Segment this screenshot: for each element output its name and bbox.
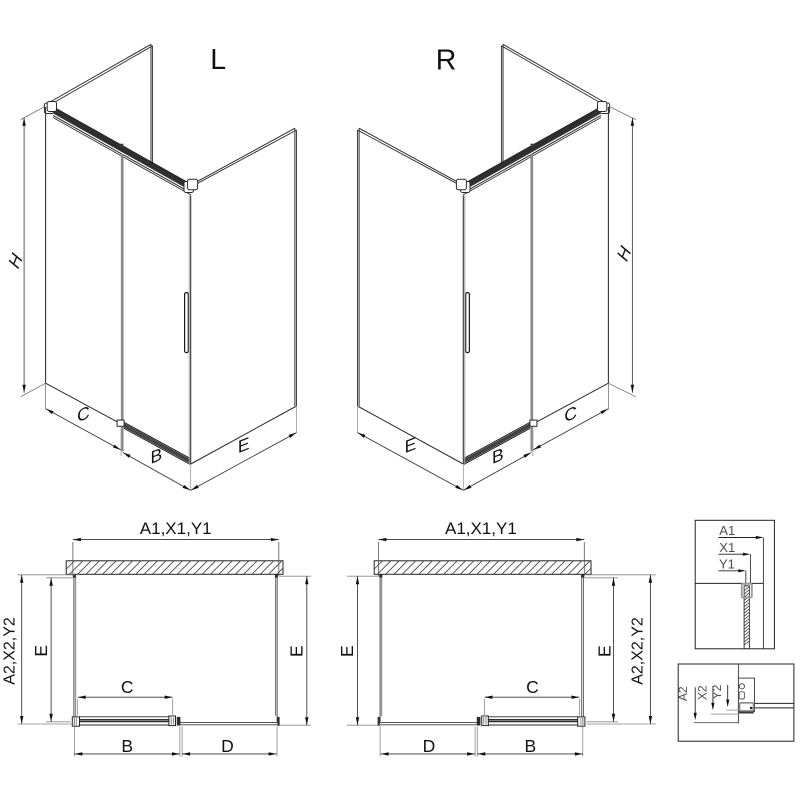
svg-text:A1,X1,Y1: A1,X1,Y1	[140, 519, 212, 538]
svg-text:A1: A1	[719, 523, 735, 538]
svg-text:D: D	[221, 736, 234, 756]
svg-text:Y1: Y1	[719, 557, 735, 572]
svg-text:X2: X2	[695, 685, 709, 700]
svg-text:A2,X2,Y2: A2,X2,Y2	[630, 617, 647, 685]
svg-text:B: B	[525, 736, 537, 756]
svg-text:X1: X1	[719, 540, 735, 555]
svg-text:A1,X1,Y1: A1,X1,Y1	[445, 519, 517, 538]
svg-text:Y2: Y2	[710, 684, 724, 699]
svg-text:R: R	[436, 45, 457, 77]
svg-text:E: E	[287, 645, 307, 657]
svg-text:B: B	[121, 736, 133, 756]
svg-text:A2,X2,Y2: A2,X2,Y2	[2, 617, 19, 685]
svg-text:C: C	[526, 677, 539, 697]
svg-text:C: C	[121, 677, 134, 697]
svg-text:D: D	[423, 736, 436, 756]
svg-text:E: E	[31, 645, 51, 657]
svg-text:A2: A2	[676, 686, 690, 701]
svg-text:E: E	[337, 645, 357, 657]
svg-text:L: L	[210, 44, 226, 76]
svg-text:E: E	[595, 645, 615, 657]
